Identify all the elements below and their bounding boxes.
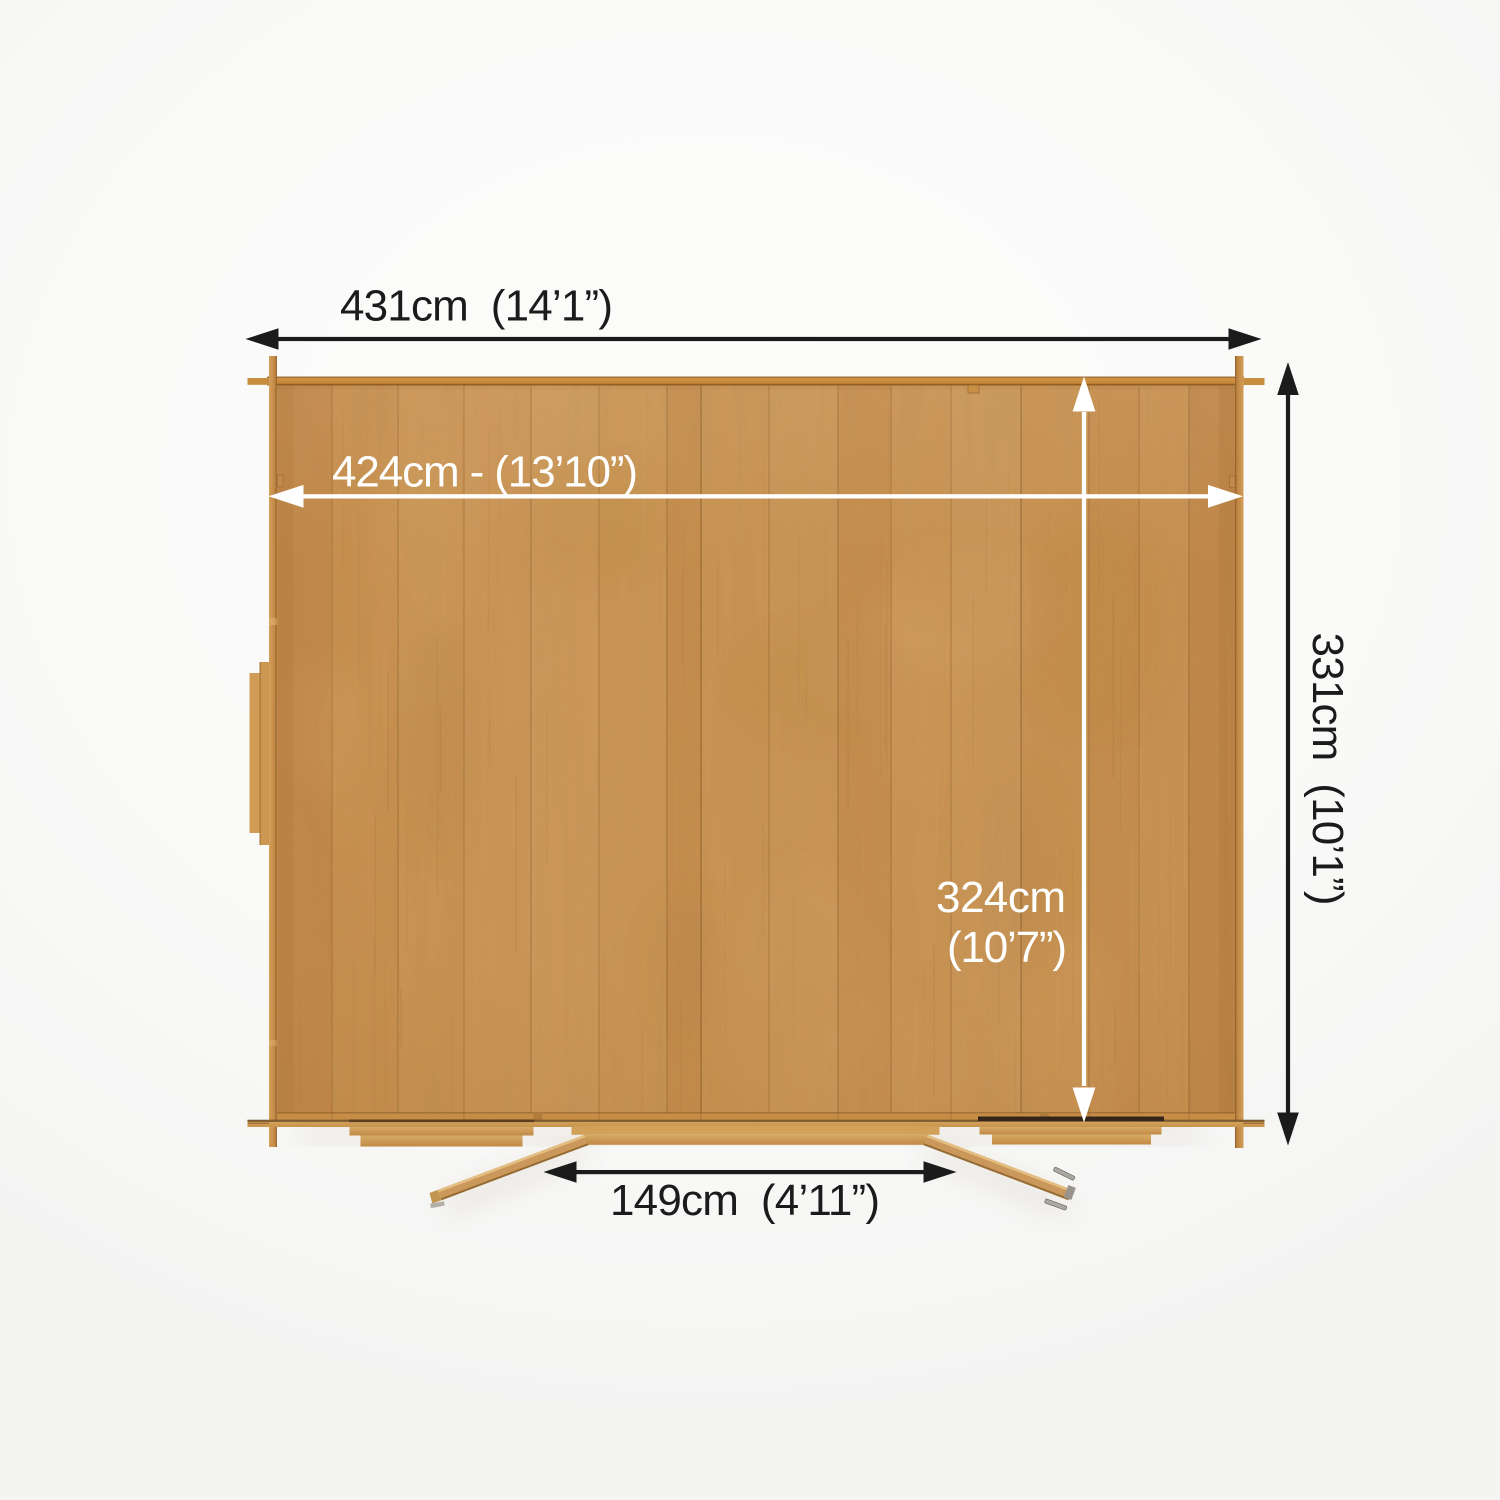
- svg-text:424cm - (13’10”): 424cm - (13’10”): [332, 448, 638, 497]
- svg-text:431cm (14’1”): 431cm (14’1”): [340, 282, 613, 331]
- svg-text:149cm (4’11”): 149cm (4’11”): [610, 1176, 880, 1225]
- svg-text:331cm (10’1”): 331cm (10’1”): [1303, 633, 1352, 906]
- svg-text:324cm: 324cm: [936, 873, 1066, 922]
- svg-text:(10’7”): (10’7”): [947, 923, 1067, 972]
